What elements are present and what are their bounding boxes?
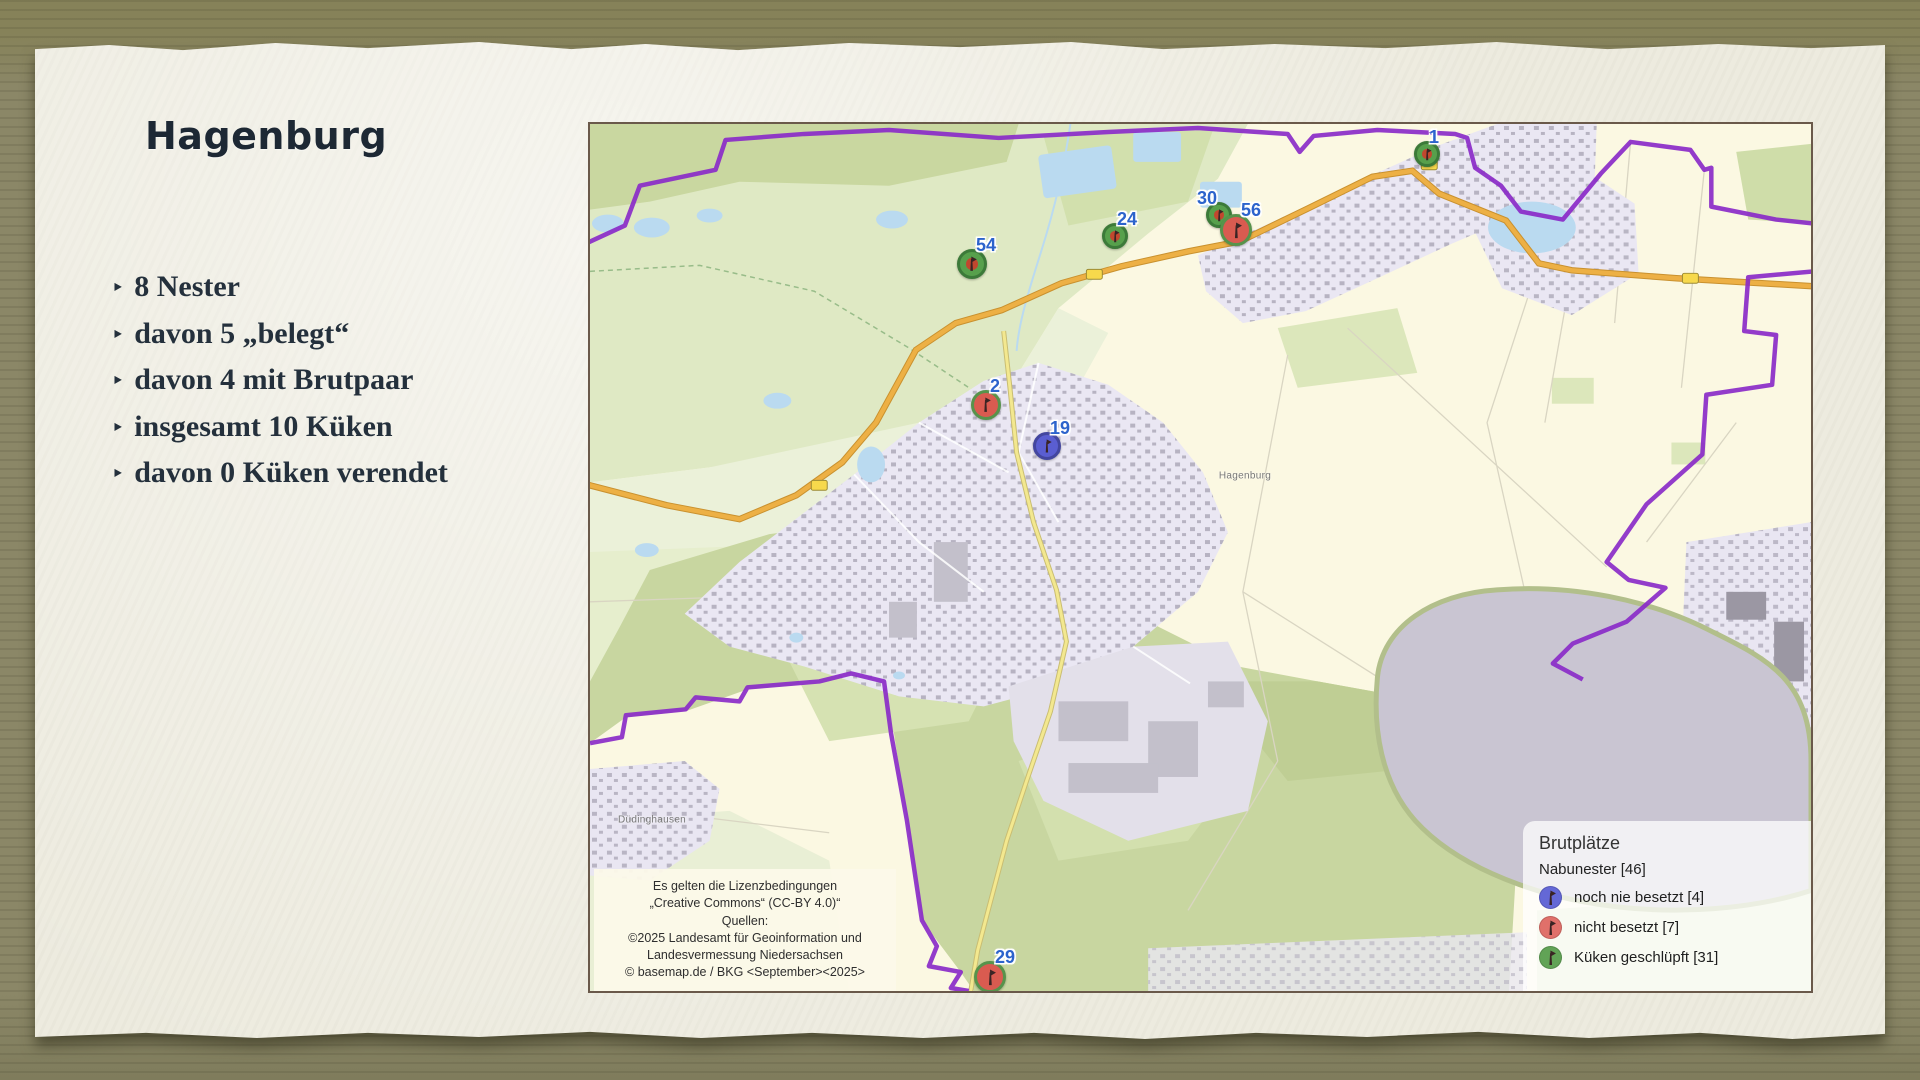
license-line: Quellen: bbox=[600, 913, 890, 930]
map-figure: HagenburgDüdinghausen 13056245421929 Es … bbox=[588, 122, 1813, 993]
slide-background: { "slide": { "title": "Hagenburg", "bull… bbox=[0, 0, 1920, 1080]
nest-icon bbox=[981, 968, 1000, 987]
marker-number: 24 bbox=[1117, 209, 1137, 230]
bullet-glyph: ‣ bbox=[112, 277, 123, 300]
bullet-glyph: ‣ bbox=[112, 370, 123, 393]
bullet-text: 8 Nester bbox=[134, 270, 240, 304]
bullet-list: ‣8 Nester‣davon 5 „belegt“‣davon 4 mit B… bbox=[112, 270, 542, 503]
legend-subtitle: Nabunester [46] bbox=[1539, 861, 1797, 878]
marker-number: 54 bbox=[976, 235, 996, 256]
map-license: Es gelten die Lizenzbedingungen„Creative… bbox=[594, 869, 896, 991]
hatched-marker-icon bbox=[1539, 946, 1562, 969]
map-legend: Brutplätze Nabunester [46] noch nie bese… bbox=[1523, 821, 1811, 991]
place-label: Hagenburg bbox=[1219, 471, 1271, 482]
nest-icon bbox=[1542, 889, 1559, 906]
map-marker-19: 19 bbox=[1033, 432, 1061, 460]
bullet-item: ‣davon 0 Küken verendet bbox=[112, 456, 542, 503]
bullet-text: davon 5 „belegt“ bbox=[134, 317, 349, 351]
legend-item-empty: nicht besetzt [7] bbox=[1539, 916, 1797, 939]
marker-number: 29 bbox=[995, 947, 1015, 968]
bullet-text: davon 4 mit Brutpaar bbox=[134, 363, 413, 397]
bullet-item: ‣insgesamt 10 Küken bbox=[112, 410, 542, 457]
nest-icon bbox=[963, 255, 980, 272]
legend-items: noch nie besetzt [4]nicht besetzt [7]Kük… bbox=[1539, 886, 1797, 969]
empty-marker-icon bbox=[1539, 916, 1562, 939]
legend-item-never: noch nie besetzt [4] bbox=[1539, 886, 1797, 909]
marker-number: 2 bbox=[990, 376, 1000, 397]
marker-number: 1 bbox=[1429, 127, 1439, 148]
slide-paper: Hagenburg ‣8 Nester‣davon 5 „belegt“‣dav… bbox=[35, 38, 1885, 1045]
nest-icon bbox=[1542, 919, 1559, 936]
bullet-glyph: ‣ bbox=[112, 324, 123, 347]
map-marker-56: 56 bbox=[1220, 214, 1252, 246]
page-title: Hagenburg bbox=[145, 114, 387, 158]
legend-item-hatched: Küken geschlüpft [31] bbox=[1539, 946, 1797, 969]
bullet-text: davon 0 Küken verendet bbox=[134, 456, 448, 490]
license-line: „Creative Commons“ (CC-BY 4.0)“ bbox=[600, 895, 890, 912]
slide-paper-wrap: Hagenburg ‣8 Nester‣davon 5 „belegt“‣dav… bbox=[35, 38, 1885, 1045]
nest-icon bbox=[977, 396, 994, 413]
legend-label: nicht besetzt [7] bbox=[1574, 919, 1679, 936]
place-label: Düdinghausen bbox=[618, 815, 686, 826]
never-marker-icon bbox=[1539, 886, 1562, 909]
bullet-glyph: ‣ bbox=[112, 417, 123, 440]
map-marker-29: 29 bbox=[974, 961, 1006, 993]
nest-icon bbox=[1108, 229, 1122, 243]
nest-icon bbox=[1227, 221, 1246, 240]
license-line: © basemap.de / BKG <September><2025> bbox=[600, 964, 890, 981]
license-line: ©2025 Landesamt für Geoinformation und bbox=[600, 930, 890, 947]
marker-number: 19 bbox=[1050, 418, 1070, 439]
license-line: Es gelten die Lizenzbedingungen bbox=[600, 878, 890, 895]
license-line: Landesvermessung Niedersachsen bbox=[600, 947, 890, 964]
map-marker-2: 2 bbox=[971, 390, 1001, 420]
bullet-glyph: ‣ bbox=[112, 463, 123, 486]
legend-title: Brutplätze bbox=[1539, 833, 1797, 854]
legend-label: Küken geschlüpft [31] bbox=[1574, 949, 1718, 966]
legend-label: noch nie besetzt [4] bbox=[1574, 889, 1704, 906]
bullet-item: ‣8 Nester bbox=[112, 270, 542, 317]
nest-icon bbox=[1542, 949, 1559, 966]
marker-number: 56 bbox=[1241, 200, 1261, 221]
map-marker-24: 24 bbox=[1102, 223, 1128, 249]
bullet-text: insgesamt 10 Küken bbox=[134, 410, 392, 444]
bullet-item: ‣davon 5 „belegt“ bbox=[112, 317, 542, 364]
bullet-item: ‣davon 4 mit Brutpaar bbox=[112, 363, 542, 410]
nest-icon bbox=[1039, 438, 1055, 454]
nest-icon bbox=[1420, 147, 1434, 161]
marker-number: 30 bbox=[1197, 188, 1217, 209]
map-marker-54: 54 bbox=[957, 249, 987, 279]
map-marker-1: 1 bbox=[1414, 141, 1440, 167]
